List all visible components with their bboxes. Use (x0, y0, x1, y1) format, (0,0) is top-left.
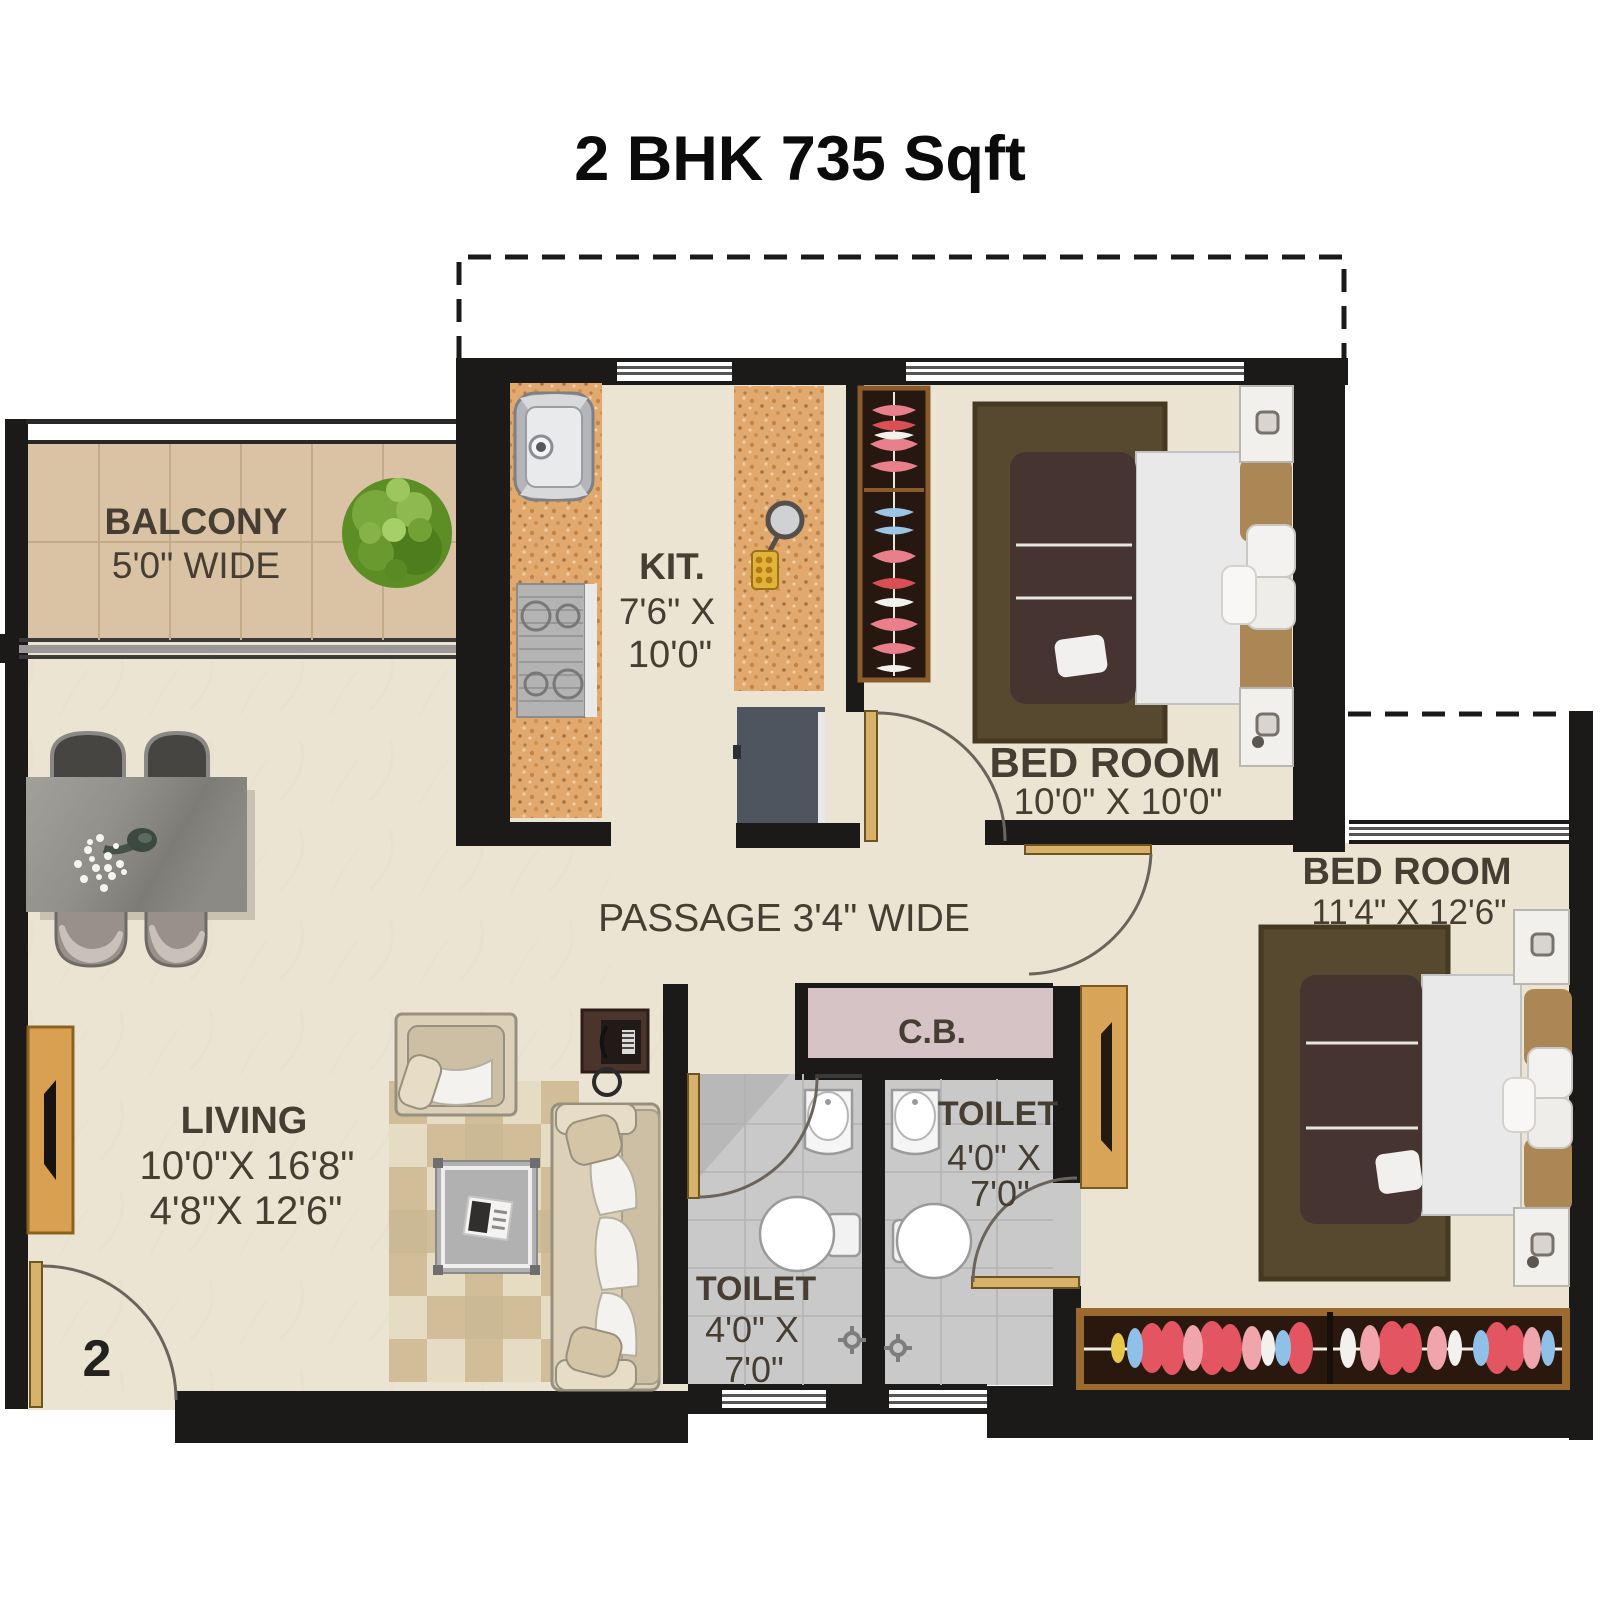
svg-text:10'0" X 10'0": 10'0" X 10'0" (1013, 781, 1222, 822)
svg-text:4'8"X 12'6": 4'8"X 12'6" (150, 1189, 343, 1233)
svg-text:PASSAGE 3'4" WIDE: PASSAGE 3'4" WIDE (598, 897, 970, 940)
svg-text:10'0"X 16'8": 10'0"X 16'8" (140, 1144, 355, 1188)
svg-text:7'0": 7'0" (970, 1173, 1030, 1214)
svg-text:11'4" X 12'6": 11'4" X 12'6" (1311, 893, 1506, 932)
svg-text:KIT.: KIT. (639, 546, 705, 587)
svg-text:C.B.: C.B. (898, 1013, 966, 1051)
svg-text:TOILET: TOILET (696, 1270, 816, 1308)
svg-text:5'0" WIDE: 5'0" WIDE (112, 545, 280, 586)
svg-text:4'0" X: 4'0" X (947, 1137, 1041, 1178)
svg-text:BED ROOM: BED ROOM (1303, 851, 1512, 893)
svg-text:2: 2 (83, 1330, 112, 1388)
svg-text:BALCONY: BALCONY (105, 501, 288, 542)
svg-text:2 BHK 735 Sqft: 2 BHK 735 Sqft (574, 124, 1026, 194)
svg-text:LIVING: LIVING (181, 1100, 308, 1142)
svg-text:TOILET: TOILET (938, 1095, 1058, 1133)
svg-text:7'6" X: 7'6" X (619, 591, 715, 632)
svg-text:4'0" X: 4'0" X (705, 1309, 799, 1350)
svg-text:7'0": 7'0" (724, 1349, 784, 1390)
svg-text:BED ROOM: BED ROOM (990, 739, 1221, 786)
svg-text:10'0": 10'0" (628, 634, 712, 676)
